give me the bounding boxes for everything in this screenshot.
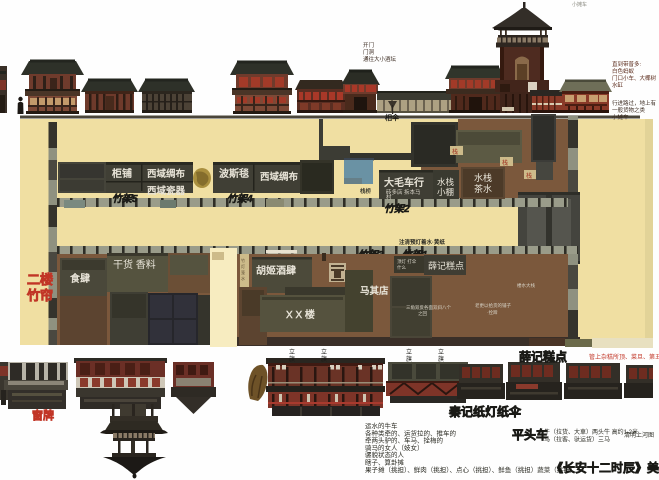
svg-text:窗牌: 窗牌 bbox=[32, 408, 54, 422]
svg-text:牵两头驴的、车马、拴梅的: 牵两头驴的、车马、拴梅的 bbox=[365, 436, 444, 445]
svg-text:小摊车: 小摊车 bbox=[612, 113, 629, 121]
svg-text:《长安十二时辰》美术组: 《长安十二时辰》美术组 bbox=[551, 460, 659, 475]
svg-text:栈: 栈 bbox=[452, 148, 458, 156]
svg-text:立: 立 bbox=[438, 348, 444, 356]
svg-text:立: 立 bbox=[321, 348, 327, 356]
svg-text:行进路过，地上有: 行进路过，地上有 bbox=[612, 99, 657, 107]
svg-text:柜铺: 柜铺 bbox=[112, 167, 132, 180]
svg-text:食肆: 食肆 bbox=[70, 272, 90, 285]
svg-text:相伞: 相伞 bbox=[385, 113, 400, 122]
svg-text:竹架5: 竹架5 bbox=[112, 193, 138, 205]
svg-text:直到带普多:: 直到带普多: bbox=[612, 60, 642, 68]
svg-text:栈桥: 栈桥 bbox=[360, 187, 372, 195]
svg-text:门洞: 门洞 bbox=[363, 48, 375, 56]
svg-text:水栈: 水栈 bbox=[474, 172, 492, 183]
svg-text:灯: 灯 bbox=[241, 263, 245, 269]
svg-text:立: 立 bbox=[289, 348, 295, 356]
svg-text:薛记糕点: 薛记糕点 bbox=[428, 260, 464, 271]
svg-text:小摊车: 小摊车 bbox=[572, 1, 587, 8]
svg-text:顶灯 打伞: 顶灯 打伞 bbox=[397, 258, 417, 265]
svg-text:骡貌状态的人: 骡貌状态的人 bbox=[365, 450, 405, 459]
svg-text:旗: 旗 bbox=[289, 355, 295, 363]
svg-text:胡姬酒肆: 胡姬酒肆 bbox=[256, 264, 296, 277]
svg-text:平头车: 平头车 bbox=[512, 427, 548, 442]
svg-text:立: 立 bbox=[406, 348, 412, 356]
svg-text:门口小车、大椰树: 门口小车、大椰树 bbox=[612, 74, 657, 82]
svg-text:白色蚂蚁: 白色蚂蚁 bbox=[612, 67, 635, 75]
svg-text:管上杂糕所顶、菜旦、第五旦: 管上杂糕所顶、菜旦、第五旦 bbox=[589, 353, 659, 361]
svg-text:竹: 竹 bbox=[241, 257, 245, 263]
svg-text:通往大小酒坛: 通往大小酒坛 bbox=[363, 55, 397, 63]
svg-text:楼水大栈: 楼水大栈 bbox=[517, 282, 535, 289]
svg-text:村: 村 bbox=[386, 193, 392, 201]
svg-text:旗: 旗 bbox=[321, 355, 327, 363]
svg-text:栈: 栈 bbox=[502, 159, 508, 167]
svg-text:旗: 旗 bbox=[406, 355, 412, 363]
svg-text:果子摊（挑担）、鲜肉（挑担）、点心（挑担）、鲜鱼（挑担）蔬菜: 果子摊（挑担）、鲜肉（挑担）、点心（挑担）、鲜鱼（挑担）蔬菜（挑担） bbox=[365, 465, 576, 474]
svg-text:西域绸布: 西域绸布 bbox=[147, 168, 185, 180]
svg-text:瞎子、算卦摊: 瞎子、算卦摊 bbox=[365, 458, 405, 467]
svg-text:二楼: 二楼 bbox=[27, 272, 53, 287]
svg-text:各种类牵的、运货拉的、推车的: 各种类牵的、运货拉的、推车的 bbox=[365, 428, 457, 437]
svg-text:清明上河图: 清明上河图 bbox=[624, 431, 654, 439]
svg-text:马（拉客、驮运货）三马: 马（拉客、驮运货）三马 bbox=[544, 436, 610, 444]
svg-text:竹架2: 竹架2 bbox=[384, 203, 410, 215]
svg-text:水缸: 水缸 bbox=[612, 81, 624, 89]
svg-text:·拴蹄: ·拴蹄 bbox=[487, 309, 498, 316]
svg-text:水: 水 bbox=[241, 275, 245, 281]
svg-text:竹架4: 竹架4 bbox=[227, 193, 253, 205]
svg-text:竹帘: 竹帘 bbox=[26, 288, 53, 303]
svg-text:西域绸布: 西域绸布 bbox=[260, 171, 298, 183]
svg-text:茶水: 茶水 bbox=[474, 183, 492, 194]
svg-text:什么: 什么 bbox=[397, 264, 406, 271]
svg-text:西域瓷器: 西域瓷器 bbox=[147, 185, 186, 197]
svg-text:秦记纸灯纸伞: 秦记纸灯纸伞 bbox=[448, 404, 522, 419]
svg-text:大毛车行: 大毛车行 bbox=[384, 176, 424, 189]
svg-text:水栈: 水栈 bbox=[437, 177, 455, 187]
svg-text:小棚: 小棚 bbox=[437, 187, 454, 197]
svg-text:注清预灯着水·黄纸: 注清预灯着水·黄纸 bbox=[399, 238, 445, 246]
svg-text:一般货物之类: 一般货物之类 bbox=[612, 106, 646, 114]
svg-text:马其店: 马其店 bbox=[360, 285, 389, 297]
svg-text:开门: 开门 bbox=[363, 41, 374, 49]
svg-text:干货 香料: 干货 香料 bbox=[113, 258, 156, 271]
svg-text:波斯毯: 波斯毯 bbox=[219, 167, 249, 180]
svg-text:三角双反各面双斜八个: 三角双反各面双斜八个 bbox=[406, 304, 451, 311]
svg-text:笼: 笼 bbox=[241, 269, 245, 275]
svg-text:旗: 旗 bbox=[438, 355, 444, 363]
svg-text:X X 楼: X X 楼 bbox=[286, 308, 315, 321]
svg-text:运水的牛车: 运水的牛车 bbox=[365, 421, 398, 430]
svg-text:薛记糕点: 薛记糕点 bbox=[519, 349, 567, 364]
svg-text:之回: 之回 bbox=[418, 310, 427, 317]
svg-text:栈: 栈 bbox=[526, 172, 532, 180]
svg-text:骑马的女人（妓女）: 骑马的女人（妓女） bbox=[365, 443, 424, 452]
svg-text:老更以拾货的铺子: 老更以拾货的铺子 bbox=[475, 302, 511, 309]
